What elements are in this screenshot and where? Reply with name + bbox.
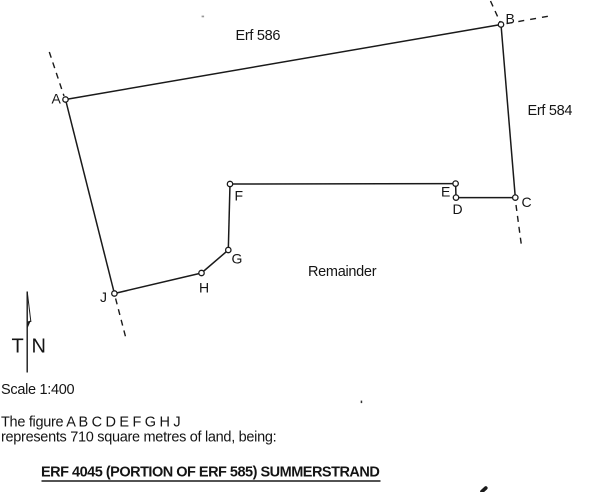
svg-text:T: T [12, 336, 24, 358]
svg-text:A: A [52, 91, 62, 107]
svg-text:The figure A B C D E F G H J: The figure A B C D E F G H J [1, 415, 180, 431]
svg-text:H: H [199, 280, 209, 296]
svg-text:F: F [235, 188, 244, 204]
svg-text:B: B [506, 11, 515, 27]
svg-text:Scale 1:400: Scale 1:400 [1, 382, 75, 398]
svg-text:Remainder: Remainder [308, 264, 377, 280]
svg-text:G: G [232, 251, 243, 267]
svg-text:ERF 4045 (PORTION OF ERF 585): ERF 4045 (PORTION OF ERF 585) SUMMERSTRA… [41, 464, 379, 480]
svg-text:Erf 586: Erf 586 [236, 28, 281, 44]
svg-text:E: E [441, 184, 450, 200]
svg-text:D: D [453, 201, 463, 217]
svg-text:Erf 584: Erf 584 [528, 103, 573, 119]
svg-text:N: N [32, 336, 46, 358]
svg-text:C: C [522, 194, 532, 210]
svg-text:represents 710 square metres o: represents 710 square metres of land, be… [1, 430, 276, 446]
svg-text:J: J [100, 289, 107, 305]
